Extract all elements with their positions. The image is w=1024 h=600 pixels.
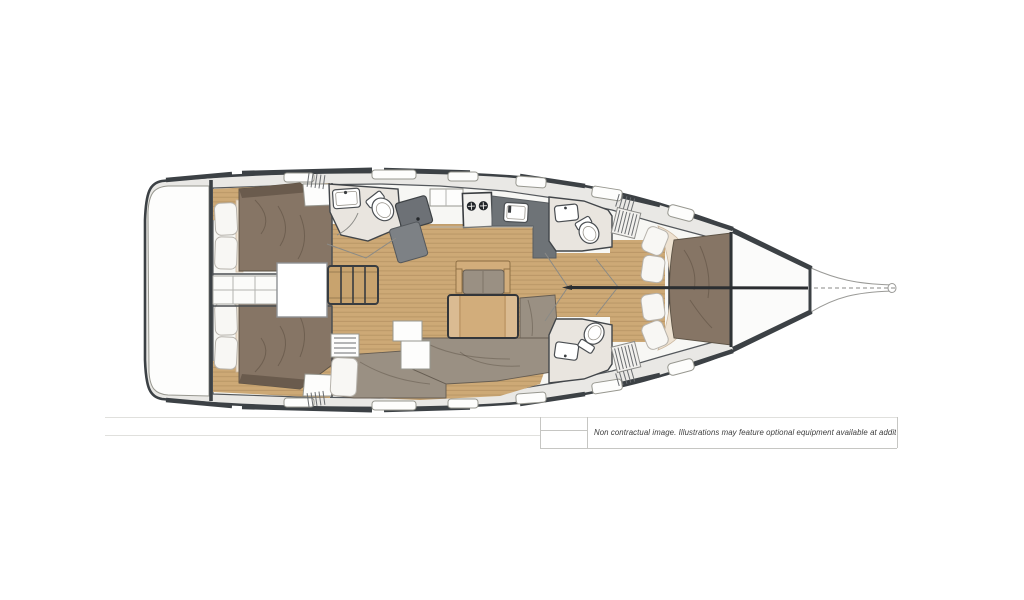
nav-module-handle [416, 217, 419, 220]
engine-box [277, 263, 327, 317]
deck-hatch [448, 399, 478, 408]
transom [148, 180, 211, 401]
head-sink [554, 204, 579, 222]
pillow [214, 303, 237, 336]
pillow [214, 202, 238, 235]
bowsprit [811, 268, 893, 312]
mast-bench [456, 261, 510, 294]
deck-hatch [372, 170, 416, 179]
head-sink [554, 342, 579, 361]
pillow [214, 237, 237, 270]
aft-head-sink [332, 188, 360, 209]
floor-plan-drawing [0, 0, 1024, 600]
companionway-steps [328, 266, 378, 304]
cabin-locker [303, 374, 332, 396]
deck-hatch [284, 398, 314, 407]
centerline [570, 288, 808, 289]
pillow [214, 336, 238, 369]
deck-hatch [284, 173, 314, 182]
footer-rule [105, 417, 897, 418]
transom-platform [148, 186, 209, 396]
galley-sink [503, 202, 528, 222]
chaise-pillow [330, 357, 358, 396]
cabin-locker [303, 184, 332, 206]
pillow [640, 293, 665, 322]
table-border [540, 448, 897, 449]
stove [462, 192, 492, 227]
pillow [640, 255, 665, 284]
yacht-floor-plan-page: Non contractual image. Illustrations may… [0, 0, 1024, 600]
table-border [587, 417, 588, 448]
side-locker [393, 321, 422, 341]
deck-hatch [516, 392, 547, 404]
disclaimer-text: Non contractual image. Illustrations may… [594, 424, 896, 442]
table-border [540, 417, 541, 448]
deck-hatch [516, 176, 547, 188]
saloon-table [448, 295, 518, 338]
table-border [540, 430, 587, 431]
deck-hatch [372, 401, 416, 410]
slatted-locker [331, 334, 359, 357]
footer-rule [105, 435, 540, 436]
deck-hatch [448, 172, 478, 181]
side-locker [401, 341, 430, 369]
table-border [897, 417, 898, 448]
